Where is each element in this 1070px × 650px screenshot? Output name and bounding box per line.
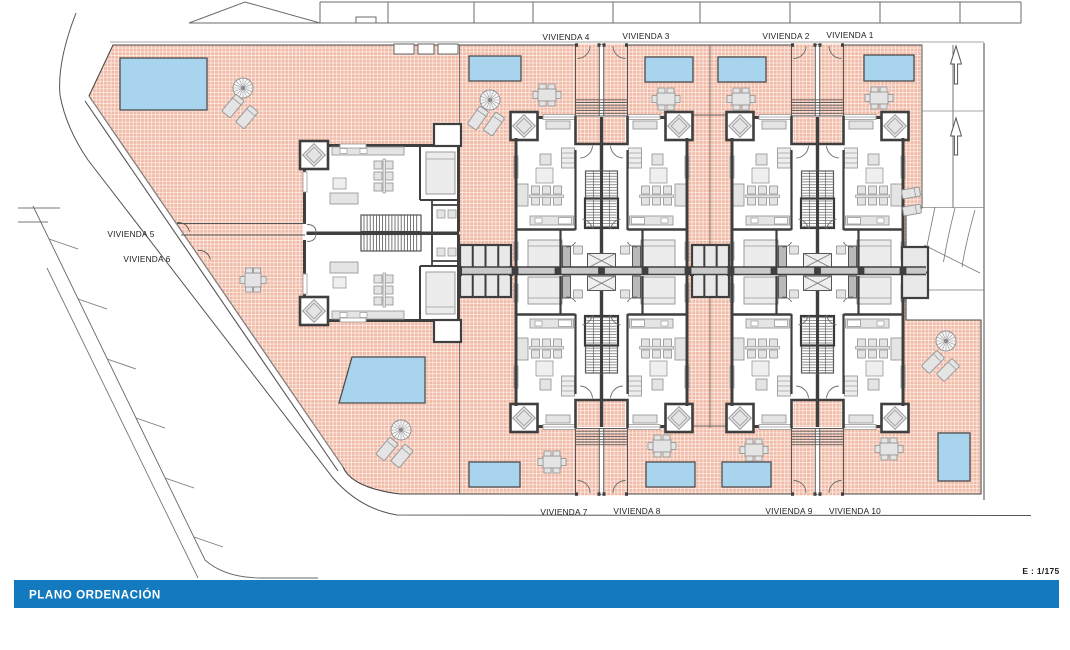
svg-text:VIVIENDA 7: VIVIENDA 7 (540, 507, 587, 517)
svg-text:PLANO ORDENACIÓN: PLANO ORDENACIÓN (29, 589, 161, 602)
svg-text:VIVIENDA 8: VIVIENDA 8 (613, 506, 660, 516)
svg-text:VIVIENDA 6: VIVIENDA 6 (123, 254, 170, 264)
svg-text:VIVIENDA 2: VIVIENDA 2 (762, 31, 809, 41)
svg-text:VIVIENDA 5: VIVIENDA 5 (107, 229, 154, 239)
svg-text:VIVIENDA 4: VIVIENDA 4 (542, 32, 589, 42)
svg-text:VIVIENDA 10: VIVIENDA 10 (829, 506, 881, 516)
svg-text:VIVIENDA 3: VIVIENDA 3 (622, 31, 669, 41)
svg-text:E : 1/175: E : 1/175 (1022, 566, 1059, 576)
svg-text:VIVIENDA 1: VIVIENDA 1 (826, 30, 873, 40)
svg-text:VIVIENDA 9: VIVIENDA 9 (765, 506, 812, 516)
